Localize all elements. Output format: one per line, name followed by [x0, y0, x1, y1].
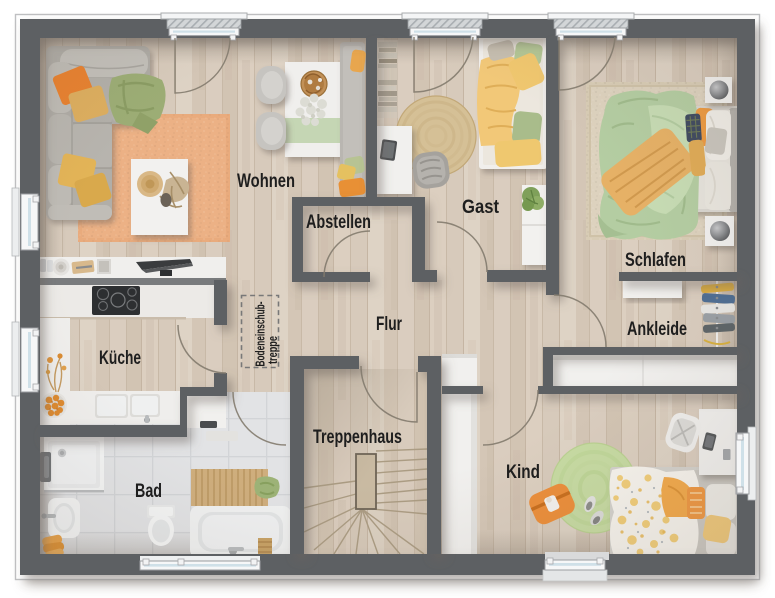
- svg-text:Bad: Bad: [135, 480, 162, 502]
- svg-text:Treppenhaus: Treppenhaus: [313, 426, 402, 448]
- svg-text:Wohnen: Wohnen: [237, 170, 295, 192]
- svg-text:Küche: Küche: [99, 347, 141, 369]
- svg-text:Abstellen: Abstellen: [306, 211, 371, 233]
- svg-text:Flur: Flur: [376, 313, 402, 335]
- svg-text:treppe: treppe: [266, 336, 280, 364]
- svg-text:Kind: Kind: [506, 461, 540, 483]
- svg-text:Ankleide: Ankleide: [627, 318, 687, 340]
- svg-text:Schlafen: Schlafen: [625, 249, 686, 271]
- svg-text:Gast: Gast: [462, 196, 499, 218]
